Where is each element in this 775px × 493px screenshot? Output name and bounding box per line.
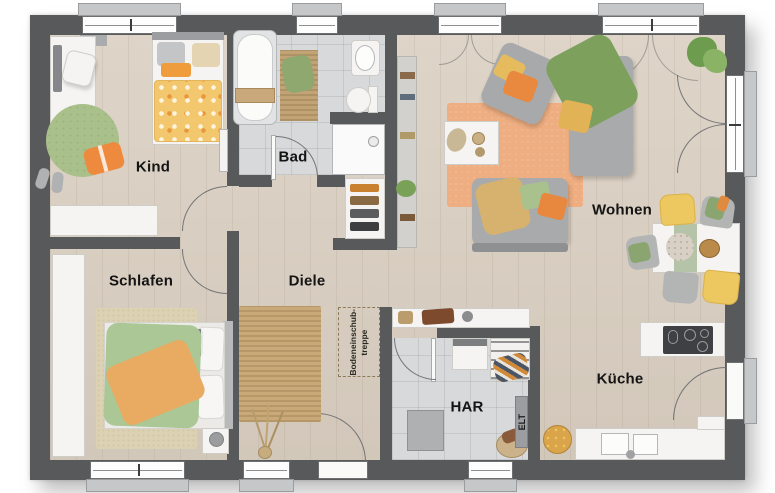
wall-shower-stub: [330, 112, 385, 124]
book-stack: [400, 132, 415, 139]
window-schlafen: [90, 461, 185, 479]
kitchen-sink-drainer: [633, 434, 658, 455]
corner-plant-leaf: [703, 49, 727, 73]
kind-bed-pillow: [192, 43, 220, 67]
dining-chair-yellow: [659, 193, 696, 226]
elt-label: ELT: [517, 414, 527, 430]
freezer-chest: [407, 410, 444, 451]
room-label-kueche: Küche: [597, 371, 644, 388]
window-har: [468, 461, 513, 479]
attic-stair-outline: Bodeneinschub-treppe: [338, 307, 380, 377]
elt-panel: ELT: [515, 396, 528, 448]
toilet-bowl: [346, 87, 371, 113]
hall-deco: [462, 311, 473, 322]
window-mullion: [138, 464, 140, 476]
window-sill: [598, 3, 704, 16]
room-label-schlafen: Schlafen: [109, 273, 173, 290]
window-sill: [239, 479, 294, 492]
window-sill: [434, 3, 506, 16]
desk-monitor: [53, 45, 62, 92]
entrance-door: [318, 461, 368, 479]
bathtub-basin: [237, 34, 273, 121]
jute-rug: [239, 306, 321, 422]
window-mullion: [130, 19, 132, 31]
book-stack: [400, 214, 415, 221]
window-wohnen-1: [438, 16, 502, 34]
dried-grass-pot: [258, 446, 272, 459]
speaker-cone: [209, 432, 224, 447]
window-sill: [78, 3, 181, 16]
window-glass-line: [246, 470, 287, 471]
book-stack: [400, 72, 415, 79]
shoes-row: [350, 222, 379, 231]
sofa-pillow-yellow: [557, 99, 593, 134]
shower-drain: [368, 136, 379, 147]
window-sill: [86, 479, 189, 492]
window-wohnen-2: [602, 16, 700, 34]
window-sill: [292, 3, 342, 16]
wardrobe: [52, 254, 85, 457]
shower: [332, 124, 385, 175]
washing-machine-front: [453, 339, 487, 346]
kitchen-counter-corner: [697, 416, 725, 430]
room-label-bad: Bad: [279, 149, 308, 166]
cooktop-burner: [668, 330, 678, 344]
sideboard-kind: [50, 205, 158, 236]
hall-bag: [422, 308, 455, 325]
sofa-base: [472, 243, 568, 252]
sunflower-basket: [543, 425, 572, 454]
window-sill: [744, 358, 757, 424]
window-sill: [464, 479, 517, 492]
terrace-door: [726, 75, 744, 173]
wall-diele-har: [380, 307, 392, 460]
dining-chair-yellow: [701, 269, 740, 306]
flower-bouquet: [666, 233, 694, 261]
window-glass-line: [441, 25, 499, 26]
wall-bad-wohnen: [385, 35, 397, 250]
window-glass-line: [299, 25, 335, 26]
kitchen-exterior-door: [726, 362, 744, 420]
kitchen-sink: [601, 433, 629, 455]
radiator: [219, 129, 228, 172]
shoes-row: [350, 184, 379, 192]
kind-bed-duvet: [154, 80, 222, 142]
shoes-row: [350, 196, 379, 205]
washbasin-bowl: [355, 45, 375, 71]
kind-bed-cushion: [161, 63, 191, 77]
shoes-row: [350, 209, 379, 218]
window-mullion: [729, 124, 741, 126]
hall-basket: [398, 311, 413, 324]
wall-kind-schlafen: [30, 237, 180, 249]
window-glass-line: [471, 470, 510, 471]
dining-chair-gray: [662, 271, 700, 305]
window-diele: [243, 461, 290, 479]
room-label-kind: Kind: [136, 159, 170, 176]
room-label-diele: Diele: [289, 273, 326, 290]
window-mullion: [651, 19, 653, 31]
window-sill: [744, 71, 757, 177]
serving-bowl: [699, 239, 720, 258]
window-bad: [296, 16, 338, 34]
towel: [280, 54, 316, 95]
bathtub-tray: [235, 88, 275, 103]
cooktop-burner: [697, 341, 708, 352]
wall-bad-bottom-right: [317, 175, 345, 187]
book-stack: [400, 94, 415, 100]
coffee-table-bowl: [475, 147, 485, 157]
wall-kind-corner: [227, 231, 239, 249]
room-label-wohnen: Wohnen: [592, 202, 652, 219]
floor-plan: Bodeneinschub-treppe ELT Kind Bad Wohnen…: [0, 0, 775, 493]
kind-bed-headboard: [152, 32, 224, 40]
attic-stair-label: Bodeneinschub-treppe: [348, 309, 370, 376]
room-label-har: HAR: [450, 399, 483, 416]
wall-bad-bottom-left: [239, 175, 272, 187]
wall-shoe-nook: [333, 238, 397, 250]
cooktop-burner: [700, 329, 709, 338]
shelf-plant: [396, 180, 416, 197]
kitchen-faucet: [626, 450, 635, 459]
coffee-table-bowl: [472, 132, 485, 145]
cooktop-burner: [684, 329, 696, 341]
